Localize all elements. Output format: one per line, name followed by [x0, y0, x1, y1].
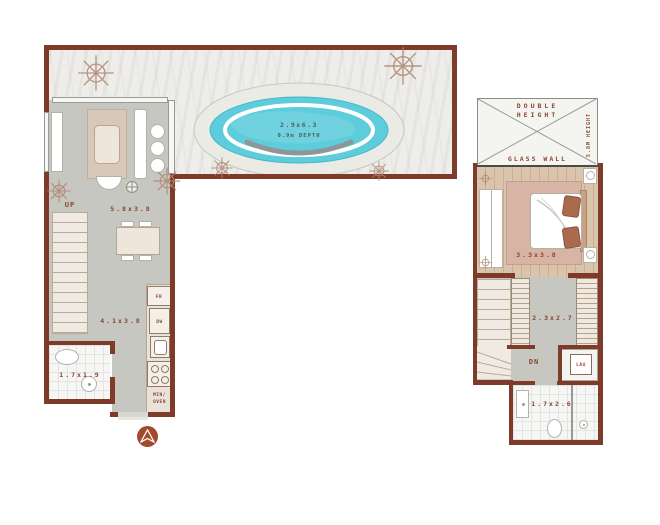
double-height-label-line2: HEIGHT [477, 111, 598, 119]
living-top-window [52, 97, 168, 103]
bath1-size-label: 1.7x1.9 [50, 371, 110, 379]
double-height-label-line1: DOUBLE [477, 102, 598, 110]
glass-wall-label: GLASS WALL [477, 155, 598, 163]
wall-left-outer [44, 45, 49, 404]
stairs-winder [477, 346, 511, 379]
sofa-cushion [150, 124, 165, 139]
bath2-toilet [547, 419, 562, 438]
up-label: UP [58, 201, 82, 209]
nightstand-lamp [586, 250, 595, 259]
fridge: FR [147, 286, 171, 306]
bath1-sink [55, 349, 79, 365]
shower-drain [579, 420, 588, 429]
tree-icon [210, 156, 234, 180]
wall-bath2-top-a [509, 381, 535, 385]
bed-pillow [562, 226, 582, 249]
dining-chair [121, 255, 134, 261]
laundry-label: LAU [571, 362, 591, 370]
entry-door [118, 412, 148, 417]
burner [161, 365, 169, 373]
drain-dot [583, 424, 585, 426]
dishwasher-label: DW [150, 319, 169, 327]
tree-icon [152, 166, 182, 196]
tree-icon [76, 53, 116, 93]
closet-left [511, 278, 530, 346]
plant-icon [478, 255, 493, 270]
wall-closet-bottom [507, 345, 535, 349]
sink-basin [154, 340, 167, 355]
dining-chair [139, 255, 152, 261]
wall-bath1-bottom [44, 399, 115, 404]
stairs-up [52, 212, 88, 334]
shower-divider [571, 385, 573, 440]
kitchen-sink [150, 336, 170, 358]
wall-terrace-right [452, 45, 457, 179]
dining-chair [139, 221, 152, 227]
wall-bath2-top-b [557, 381, 603, 385]
dining-table [116, 227, 160, 255]
dishwasher: DW [149, 308, 170, 334]
living-left-window [44, 112, 49, 172]
floorplan-canvas: 2.9x6.3 0.9m DEPTH UP FR DW [0, 0, 660, 525]
living-size-label: 5.8x3.8 [101, 205, 161, 213]
oven-label-line2: OVEN [146, 399, 173, 407]
wall-bedroom-dressing-b [568, 273, 603, 278]
wall-bath2-left [509, 380, 513, 445]
bed-pillow [562, 195, 582, 218]
stove [147, 361, 171, 387]
dining-chair [121, 221, 134, 227]
tree-icon [382, 45, 424, 87]
glass-wall-line [477, 165, 598, 167]
pool-size-label: 2.9x6.3 [280, 121, 318, 129]
pool-depth-label: 0.9m DEPTH [277, 133, 320, 139]
wall-right-plan-bottom [509, 440, 603, 445]
wall-stairs-bottom [473, 380, 513, 385]
kitchen-size-label: 4.1x3.8 [90, 317, 152, 325]
sofa-cushion [150, 141, 165, 156]
tree-icon [368, 160, 390, 182]
living-right-glass [168, 100, 175, 174]
fridge-label: FR [148, 294, 170, 302]
burner [151, 365, 159, 373]
wall-bath1-right-a [110, 341, 115, 354]
bedroom-size-label: 3.3x3.8 [505, 251, 569, 259]
daybed-bench [51, 112, 63, 172]
sofa [134, 109, 147, 179]
nightstand-lamp [586, 171, 595, 180]
north-arrow-icon [137, 426, 158, 447]
plant-icon [478, 171, 493, 186]
down-label: DN [521, 358, 547, 366]
coffee-table [94, 125, 120, 164]
height-note-label: 5.8M HEIGHT [585, 110, 593, 160]
burner [161, 376, 169, 384]
wall-bath1-top [44, 341, 115, 345]
burner [151, 376, 159, 384]
laundry-unit: LAU [570, 354, 592, 375]
wall-laundry-left [558, 345, 562, 385]
wall-laundry-top [558, 345, 603, 349]
ceiling-fan-icon [126, 181, 138, 193]
closet-right [576, 278, 598, 346]
drain-dot [88, 383, 91, 386]
wall-kitchen-right [170, 174, 175, 417]
bath2-size-label: 1.7x2.6 [518, 400, 586, 408]
dressing-size-label: 2.3x2.7 [521, 314, 585, 322]
wall-right-plan-right [598, 163, 603, 445]
entry-threshold [118, 417, 148, 420]
wall-bedroom-dressing-a [473, 273, 515, 278]
